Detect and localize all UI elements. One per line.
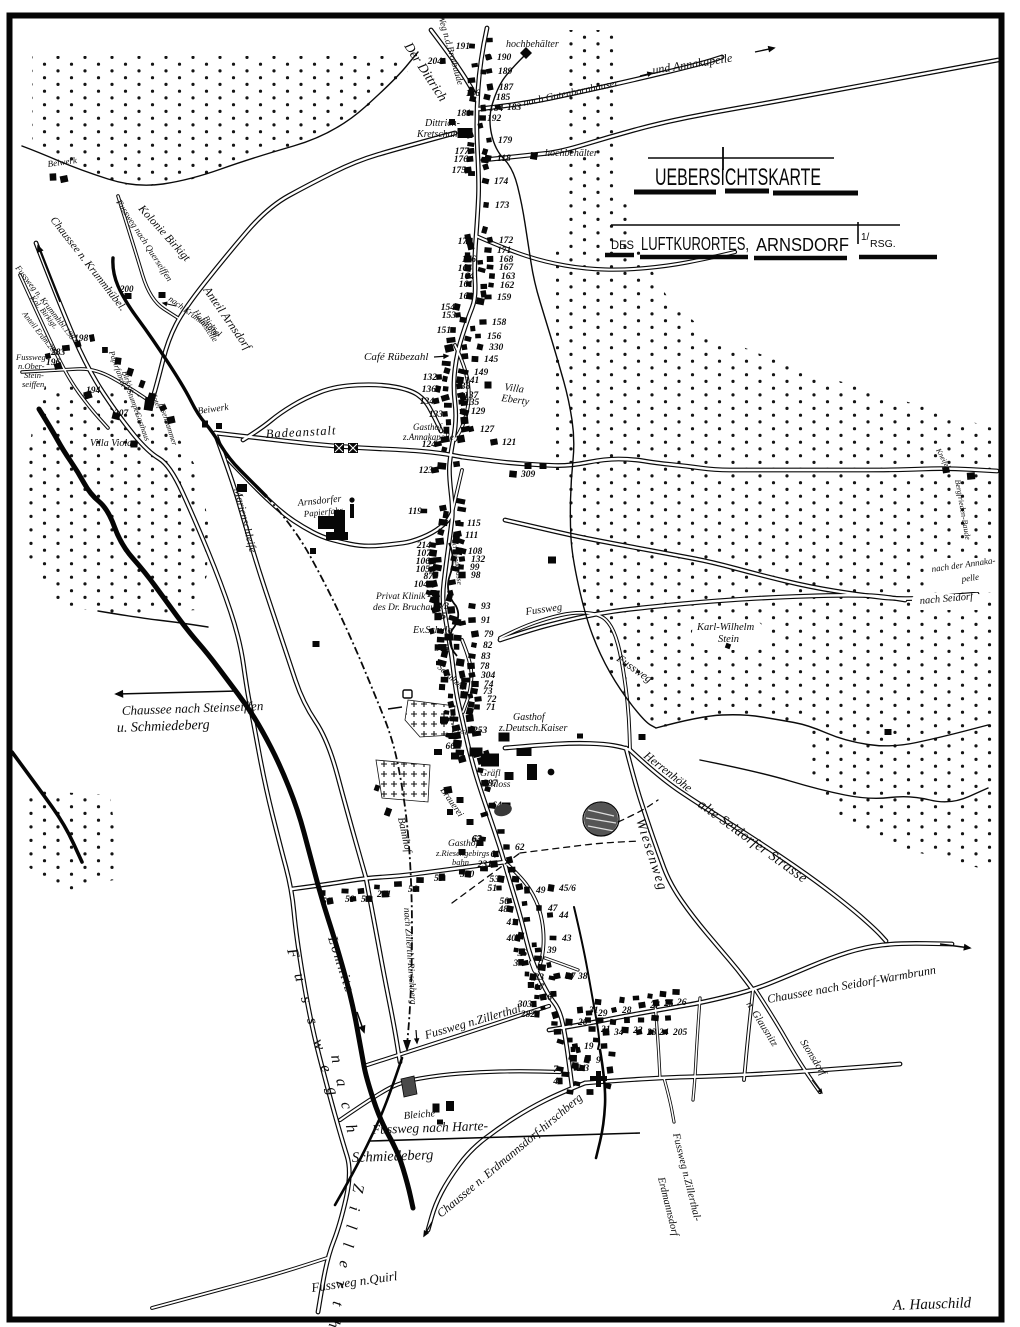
svg-text:UEBERSICHTSKARTE: UEBERSICHTSKARTE: [655, 164, 821, 191]
svg-text:192: 192: [487, 114, 502, 124]
svg-text:39: 39: [546, 946, 557, 956]
svg-text:134: 134: [420, 397, 435, 407]
svg-text:175: 175: [452, 166, 467, 176]
svg-text:RSG.: RSG.: [870, 238, 896, 250]
svg-text:162: 162: [500, 281, 515, 291]
svg-text:LUFTKURORTES,: LUFTKURORTES,: [641, 234, 749, 254]
svg-text:190: 190: [497, 53, 512, 63]
svg-text:189: 189: [498, 67, 513, 77]
svg-text:71: 71: [486, 703, 496, 713]
svg-text:Gasthof: Gasthof: [513, 712, 546, 723]
svg-text:62: 62: [515, 843, 525, 853]
svg-text:Gasthof: Gasthof: [413, 422, 443, 432]
svg-text:172: 172: [499, 236, 514, 246]
svg-text:28: 28: [621, 1006, 632, 1016]
svg-text:115: 115: [467, 519, 481, 529]
svg-text:151: 151: [437, 326, 451, 336]
svg-text:Schmiedeberg: Schmiedeberg: [352, 1147, 434, 1166]
svg-text:119: 119: [408, 507, 422, 517]
svg-text:des Dr. Bruchauff: des Dr. Bruchauff: [373, 602, 442, 613]
svg-text:179: 179: [498, 136, 513, 146]
svg-text:Café Rübezahl: Café Rübezahl: [364, 351, 428, 363]
svg-text:47: 47: [547, 904, 559, 914]
svg-text:DES: DES: [611, 238, 634, 252]
svg-text:Privat Klinik: Privat Klinik: [375, 592, 426, 602]
svg-text:Villa Viola: Villa Viola: [90, 438, 132, 449]
svg-text:z.Annakapelle: z.Annakapelle: [402, 432, 454, 442]
svg-text:153: 153: [442, 311, 457, 321]
svg-text:98: 98: [471, 571, 481, 581]
svg-text:132: 132: [423, 373, 438, 383]
svg-text:hochbehälter: hochbehälter: [545, 148, 598, 159]
svg-text:43: 43: [561, 934, 572, 944]
svg-text:145: 145: [484, 355, 499, 365]
svg-text:1/: 1/: [861, 232, 870, 243]
svg-text:330: 330: [488, 343, 504, 353]
svg-text:282: 282: [520, 1010, 536, 1020]
svg-text:123: 123: [419, 466, 434, 476]
svg-text:45/6: 45/6: [558, 884, 576, 894]
svg-text:111: 111: [465, 531, 478, 541]
svg-text:104: 104: [414, 580, 429, 590]
svg-text:83: 83: [481, 652, 491, 662]
svg-text:185: 185: [496, 93, 511, 103]
svg-text:183: 183: [507, 103, 522, 113]
svg-text:191: 191: [456, 42, 470, 52]
svg-text:129: 129: [471, 407, 486, 417]
svg-text:309: 309: [520, 470, 536, 480]
svg-text:79: 79: [484, 630, 494, 640]
svg-text:26: 26: [676, 998, 687, 1008]
svg-text:49: 49: [535, 886, 546, 896]
svg-text:Karl-Wilhelm: Karl-Wilhelm: [696, 622, 755, 633]
svg-text:9: 9: [596, 1056, 601, 1066]
svg-text:z.Deutsch.Kaiser: z.Deutsch.Kaiser: [498, 723, 567, 734]
svg-text:205: 205: [672, 1028, 688, 1038]
svg-text:200: 200: [119, 284, 134, 294]
svg-text:40: 40: [506, 934, 517, 944]
svg-text:44: 44: [558, 911, 569, 921]
svg-text:Kretscham: Kretscham: [416, 129, 460, 140]
svg-text:91: 91: [481, 616, 491, 626]
svg-text:A. Hauschild: A. Hauschild: [892, 1295, 972, 1314]
svg-text:ARNSDORF: ARNSDORF: [756, 235, 849, 255]
svg-text:159: 159: [497, 293, 512, 303]
svg-text:Ev.Schule: Ev.Schule: [412, 625, 453, 636]
svg-text:hochbehälter: hochbehälter: [506, 39, 559, 50]
svg-text:187: 187: [499, 83, 515, 93]
svg-text:118: 118: [497, 154, 511, 164]
svg-text:82: 82: [483, 641, 493, 651]
svg-text:156: 156: [487, 332, 502, 342]
svg-text:136: 136: [422, 385, 437, 395]
svg-text:Dittrich-: Dittrich-: [424, 118, 460, 129]
svg-text:Stein: Stein: [718, 634, 739, 645]
svg-text:63: 63: [472, 834, 482, 845]
svg-text:Gräfl: Gräfl: [480, 768, 501, 779]
svg-text:38: 38: [577, 972, 588, 982]
svg-text:158: 158: [492, 318, 507, 328]
svg-text:133: 133: [429, 410, 444, 420]
svg-text:127: 127: [480, 425, 496, 435]
svg-text:173: 173: [495, 201, 510, 211]
svg-text:19: 19: [584, 1042, 594, 1052]
svg-text:seiffen.: seiffen.: [22, 379, 46, 389]
svg-text:Schloss: Schloss: [482, 780, 511, 790]
svg-text:174: 174: [494, 177, 509, 187]
svg-text:176: 176: [454, 155, 469, 165]
svg-text:51: 51: [488, 884, 498, 894]
svg-text:121: 121: [502, 438, 516, 448]
svg-text:bahn: bahn: [452, 857, 469, 867]
svg-text:93: 93: [481, 602, 491, 612]
